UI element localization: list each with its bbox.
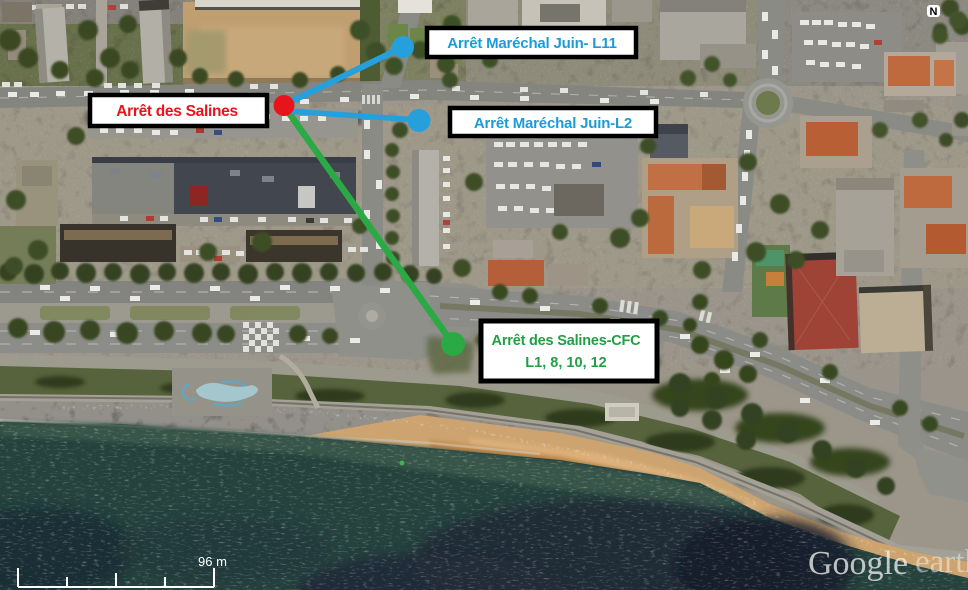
svg-text:N: N [930,6,938,18]
svg-text:L1, 8, 10, 12: L1, 8, 10, 12 [525,355,606,371]
svg-text:Arrêt Maréchal Juin- L11: Arrêt Maréchal Juin- L11 [447,35,616,52]
svg-text:Arrêt des Salines-CFC: Arrêt des Salines-CFC [492,333,642,349]
svg-text:Google: Google [808,545,908,582]
svg-text:earth: earth [915,544,968,580]
svg-text:Arrêt Maréchal Juin-L2: Arrêt Maréchal Juin-L2 [474,115,632,132]
svg-text:Arrêt des Salines: Arrêt des Salines [116,103,238,120]
svg-text:96 m: 96 m [198,554,227,569]
